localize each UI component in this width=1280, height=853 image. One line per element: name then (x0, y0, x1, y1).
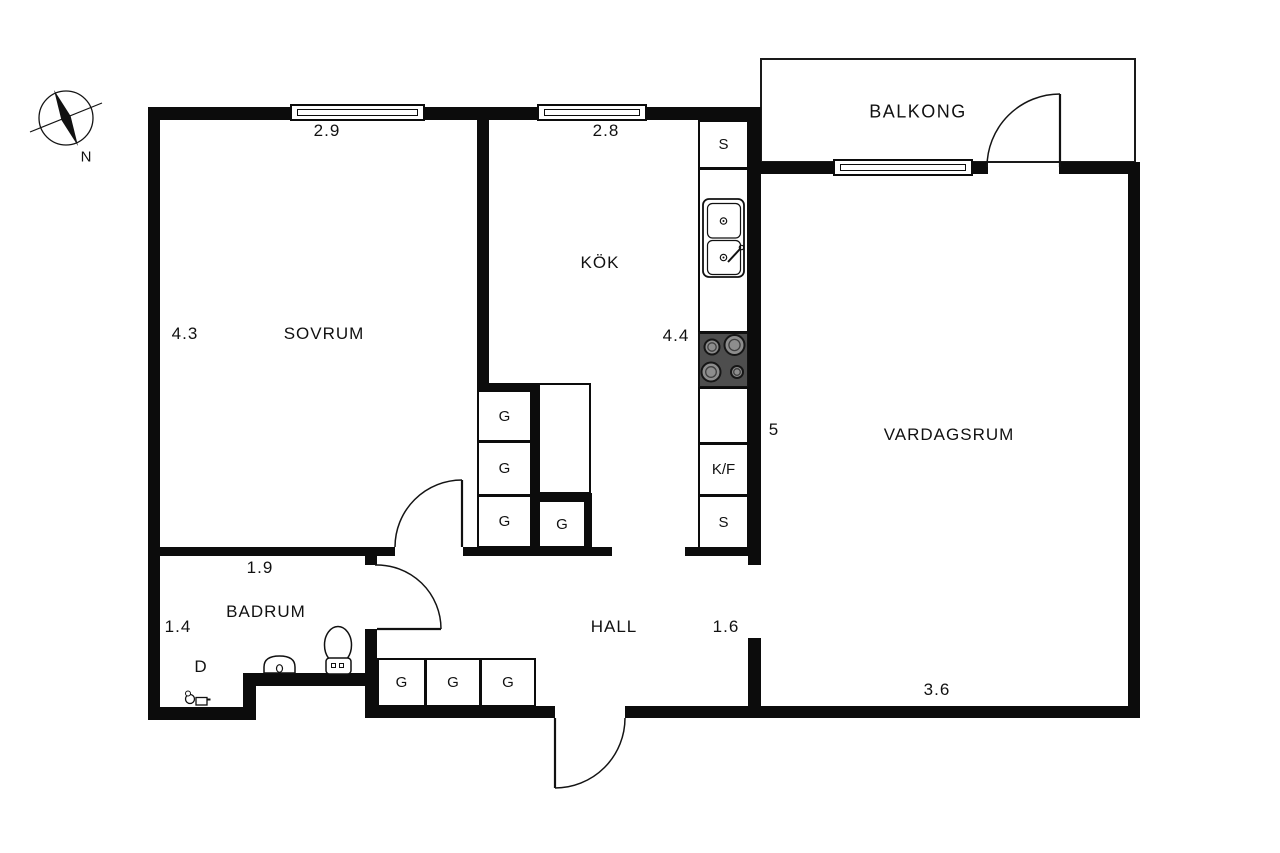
stove-burners (702, 335, 745, 382)
dim-label-kok-depth: 4.4 (663, 326, 690, 346)
badrum-door (375, 565, 441, 629)
room-label-hall: HALL (591, 617, 638, 637)
dim-label-badrum-width: 1.9 (247, 558, 274, 578)
front-door (555, 718, 625, 788)
dim-label-kok-width: 2.8 (593, 121, 620, 141)
floor-plan: G G G G G G G S K/F S (0, 0, 1280, 853)
symbol-overlay (0, 0, 1280, 853)
room-label-kok: KÖK (581, 253, 620, 273)
dim-label-vardagsrum-width: 3.6 (924, 680, 951, 700)
dim-label-hall-width: 1.6 (713, 617, 740, 637)
room-label-balkong: BALKONG (869, 102, 967, 123)
compass-icon (30, 90, 102, 146)
dim-label-badrum-depth: 1.4 (165, 617, 192, 637)
room-label-badrum: BADRUM (226, 602, 306, 622)
toilet-icon (325, 627, 352, 675)
shower-label: D (194, 657, 207, 677)
bathroom-sink-icon (264, 656, 295, 673)
washer-tap-icon (186, 691, 211, 705)
compass-north-label: N (81, 149, 92, 166)
balcony-door (987, 94, 1060, 167)
dim-label-vardagsrum-depth: 5 (769, 420, 779, 440)
room-label-vardagsrum: VARDAGSRUM (884, 425, 1015, 445)
room-label-sovrum: SOVRUM (284, 324, 365, 344)
sovrum-door (395, 480, 462, 547)
kitchen-sink-icon (703, 199, 744, 277)
dim-label-sovrum-width: 2.9 (314, 121, 341, 141)
dim-label-sovrum-depth: 4.3 (172, 324, 199, 344)
